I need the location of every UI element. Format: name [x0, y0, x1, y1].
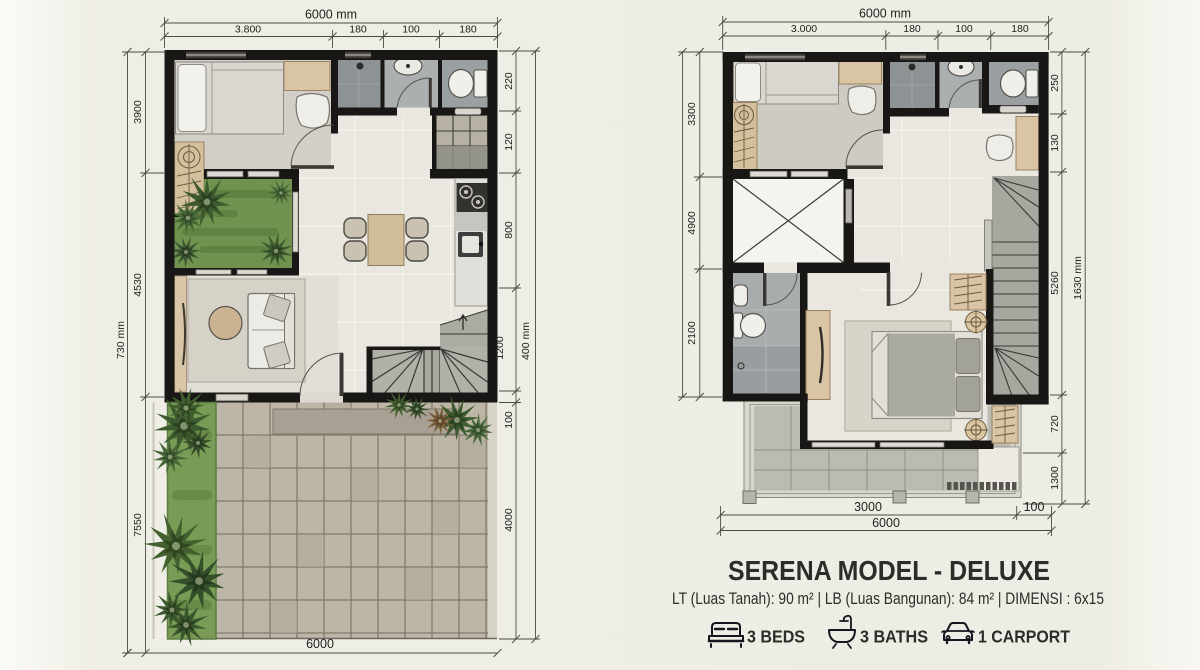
svg-text:1630 mm: 1630 mm	[1072, 256, 1084, 300]
svg-text:180: 180	[349, 24, 367, 36]
svg-text:4530: 4530	[132, 273, 144, 297]
svg-text:100: 100	[955, 23, 973, 35]
svg-text:1200: 1200	[494, 336, 506, 360]
svg-text:3 BEDS: 3 BEDS	[747, 627, 805, 647]
svg-text:100: 100	[503, 411, 515, 429]
svg-text:180: 180	[903, 23, 921, 35]
svg-text:250: 250	[1049, 74, 1061, 92]
svg-text:6000: 6000	[306, 637, 334, 651]
svg-text:SERENA MODEL - DELUXE: SERENA MODEL - DELUXE	[728, 555, 1050, 586]
svg-text:180: 180	[459, 24, 477, 36]
svg-text:220: 220	[503, 72, 515, 90]
svg-text:4900: 4900	[686, 211, 698, 235]
svg-text:7550: 7550	[132, 513, 144, 537]
svg-text:2100: 2100	[686, 321, 698, 345]
svg-text:6000 mm: 6000 mm	[859, 7, 911, 21]
svg-text:5260: 5260	[1049, 271, 1061, 295]
svg-text:130: 130	[1049, 134, 1061, 152]
svg-text:6000 mm: 6000 mm	[305, 8, 357, 22]
svg-text:100: 100	[402, 24, 420, 36]
svg-text:100: 100	[1024, 500, 1045, 514]
svg-text:4000: 4000	[503, 508, 515, 532]
svg-text:400 mm: 400 mm	[520, 322, 532, 360]
svg-text:720: 720	[1049, 415, 1061, 433]
svg-text:3 BATHS: 3 BATHS	[860, 627, 928, 647]
svg-text:180: 180	[1011, 23, 1029, 35]
svg-text:3000: 3000	[854, 500, 882, 514]
svg-text:730 mm: 730 mm	[115, 321, 127, 359]
svg-text:3.000: 3.000	[791, 23, 817, 35]
svg-text:3300: 3300	[686, 102, 698, 126]
svg-text:3900: 3900	[132, 100, 144, 124]
svg-text:800: 800	[503, 221, 515, 239]
svg-text:LT (Luas Tanah): 90 m² | LB (L: LT (Luas Tanah): 90 m² | LB (Luas Bangun…	[672, 590, 1104, 608]
svg-text:1 CARPORT: 1 CARPORT	[978, 627, 1070, 647]
svg-text:6000: 6000	[872, 516, 900, 530]
svg-text:120: 120	[503, 133, 515, 151]
svg-text:3.800: 3.800	[235, 24, 261, 36]
svg-text:1300: 1300	[1049, 466, 1061, 490]
